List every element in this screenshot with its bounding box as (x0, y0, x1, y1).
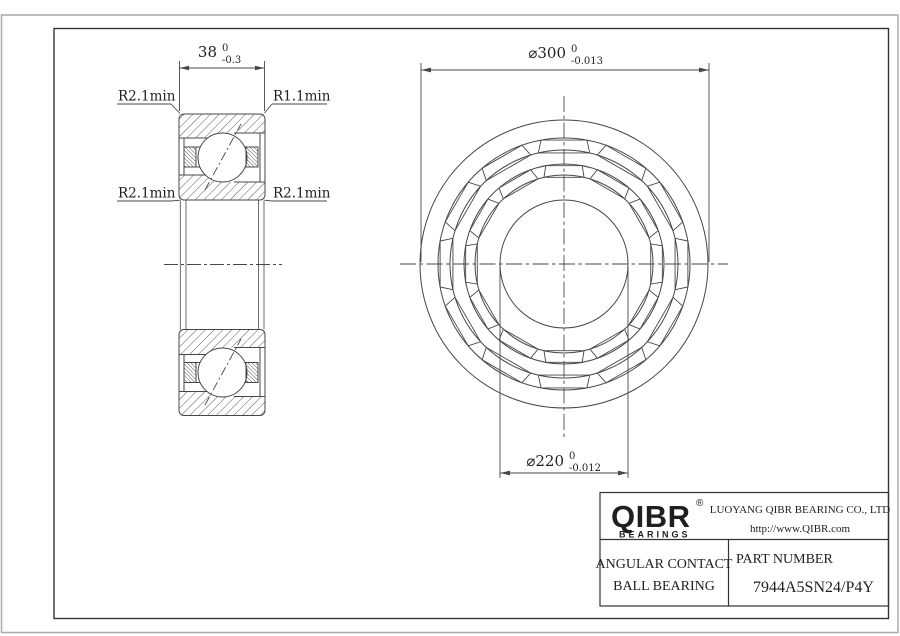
cage-section (246, 363, 258, 383)
cage-pocket (590, 329, 629, 358)
cage-section (246, 147, 258, 167)
cross-section-view (164, 114, 282, 416)
fillet-label-top-right: R1.1min (273, 89, 331, 105)
product-type-line2: BALL BEARING (613, 579, 715, 594)
bore-tol-upper: 0 (569, 451, 575, 462)
cage-pocket (470, 199, 499, 238)
cage-section (184, 147, 196, 167)
width-tol-lower: -0.3 (222, 55, 241, 66)
engineering-drawing: 38 0 -0.3 R2.1min R1.1min R2.1min R2.1mi… (0, 0, 900, 636)
fillet-label-bottom-right: R2.1min (273, 186, 331, 202)
cage-pocket (470, 290, 499, 329)
dimension-width (180, 61, 265, 111)
cage-pocket (629, 290, 658, 329)
bore-tol-lower: -0.012 (569, 463, 601, 474)
front-view (400, 96, 728, 438)
od-tol-upper: 0 (571, 44, 577, 55)
cage-pocket (590, 170, 629, 199)
od-dimension-value: ⌀300 (528, 44, 566, 62)
cage-section (184, 363, 196, 383)
width-tol-upper: 0 (222, 43, 228, 54)
company-name: LUOYANG QIBR BEARING CO., LTD (710, 504, 891, 516)
od-tol-lower: -0.013 (571, 56, 603, 67)
brand-logo: QIBR ® BEARINGS (611, 498, 704, 540)
width-dimension-value: 38 (198, 43, 217, 61)
part-number-value: 7944A5SN24/P4Y (753, 579, 874, 596)
logo-subtext: BEARINGS (619, 530, 691, 540)
drawing-sheet: 38 0 -0.3 R2.1min R1.1min R2.1min R2.1mi… (0, 0, 900, 636)
cage-pocket (499, 170, 538, 199)
product-type-line1: ANGULAR CONTACT (596, 557, 733, 572)
registered-trademark-icon: ® (696, 498, 704, 509)
bore-dimension-value: ⌀220 (526, 452, 564, 470)
cage-pocket (499, 329, 538, 358)
fillet-label-bottom-left: R2.1min (118, 186, 176, 202)
company-website: http://www.QIBR.com (750, 523, 851, 535)
cage-pocket (629, 199, 658, 238)
part-number-label: PART NUMBER (736, 552, 833, 567)
fillet-label-top-left: R2.1min (118, 89, 176, 105)
